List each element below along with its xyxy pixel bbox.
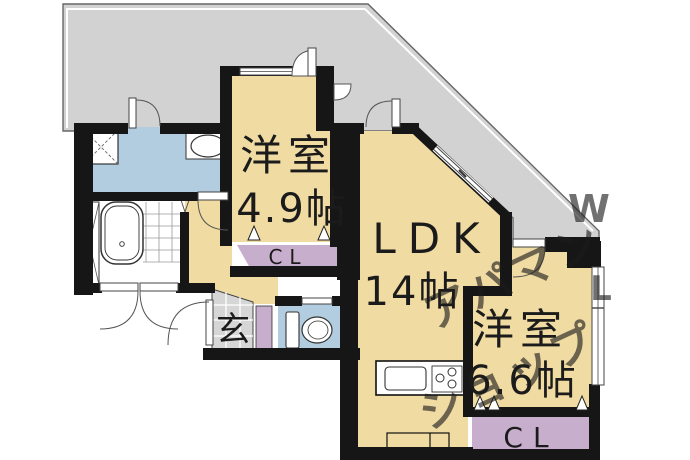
entrance-label: 玄 [216, 310, 250, 350]
floorplan-svg: アパマン ショップ W L 洋室 4.9帖 LDK 14帖 洋室 6.6帖 CL… [0, 0, 690, 460]
watermark-letter-w: W [568, 187, 610, 231]
closet2-label: CL [503, 421, 558, 454]
room1-size: 4.9帖 [236, 186, 348, 232]
door-toilet [302, 298, 332, 304]
door-exterior-double [100, 283, 178, 329]
room2-size: 6.6帖 [466, 358, 578, 404]
room1-name: 洋室 [240, 131, 336, 180]
closet1-label: CL [268, 245, 307, 269]
ldk-size: 14帖 [364, 269, 461, 315]
door-entrance [168, 300, 213, 345]
room1-window [240, 68, 296, 75]
room2-name: 洋室 [472, 305, 568, 354]
kitchen-sink [385, 367, 426, 390]
shoe-cabinet [256, 306, 272, 350]
bathtub [101, 202, 143, 264]
floorplan-page: アパマン ショップ W L 洋室 4.9帖 LDK 14帖 洋室 6.6帖 CL… [0, 0, 690, 460]
watermark-letter-l: L [590, 269, 612, 309]
ldk-name: LDK [372, 214, 491, 263]
